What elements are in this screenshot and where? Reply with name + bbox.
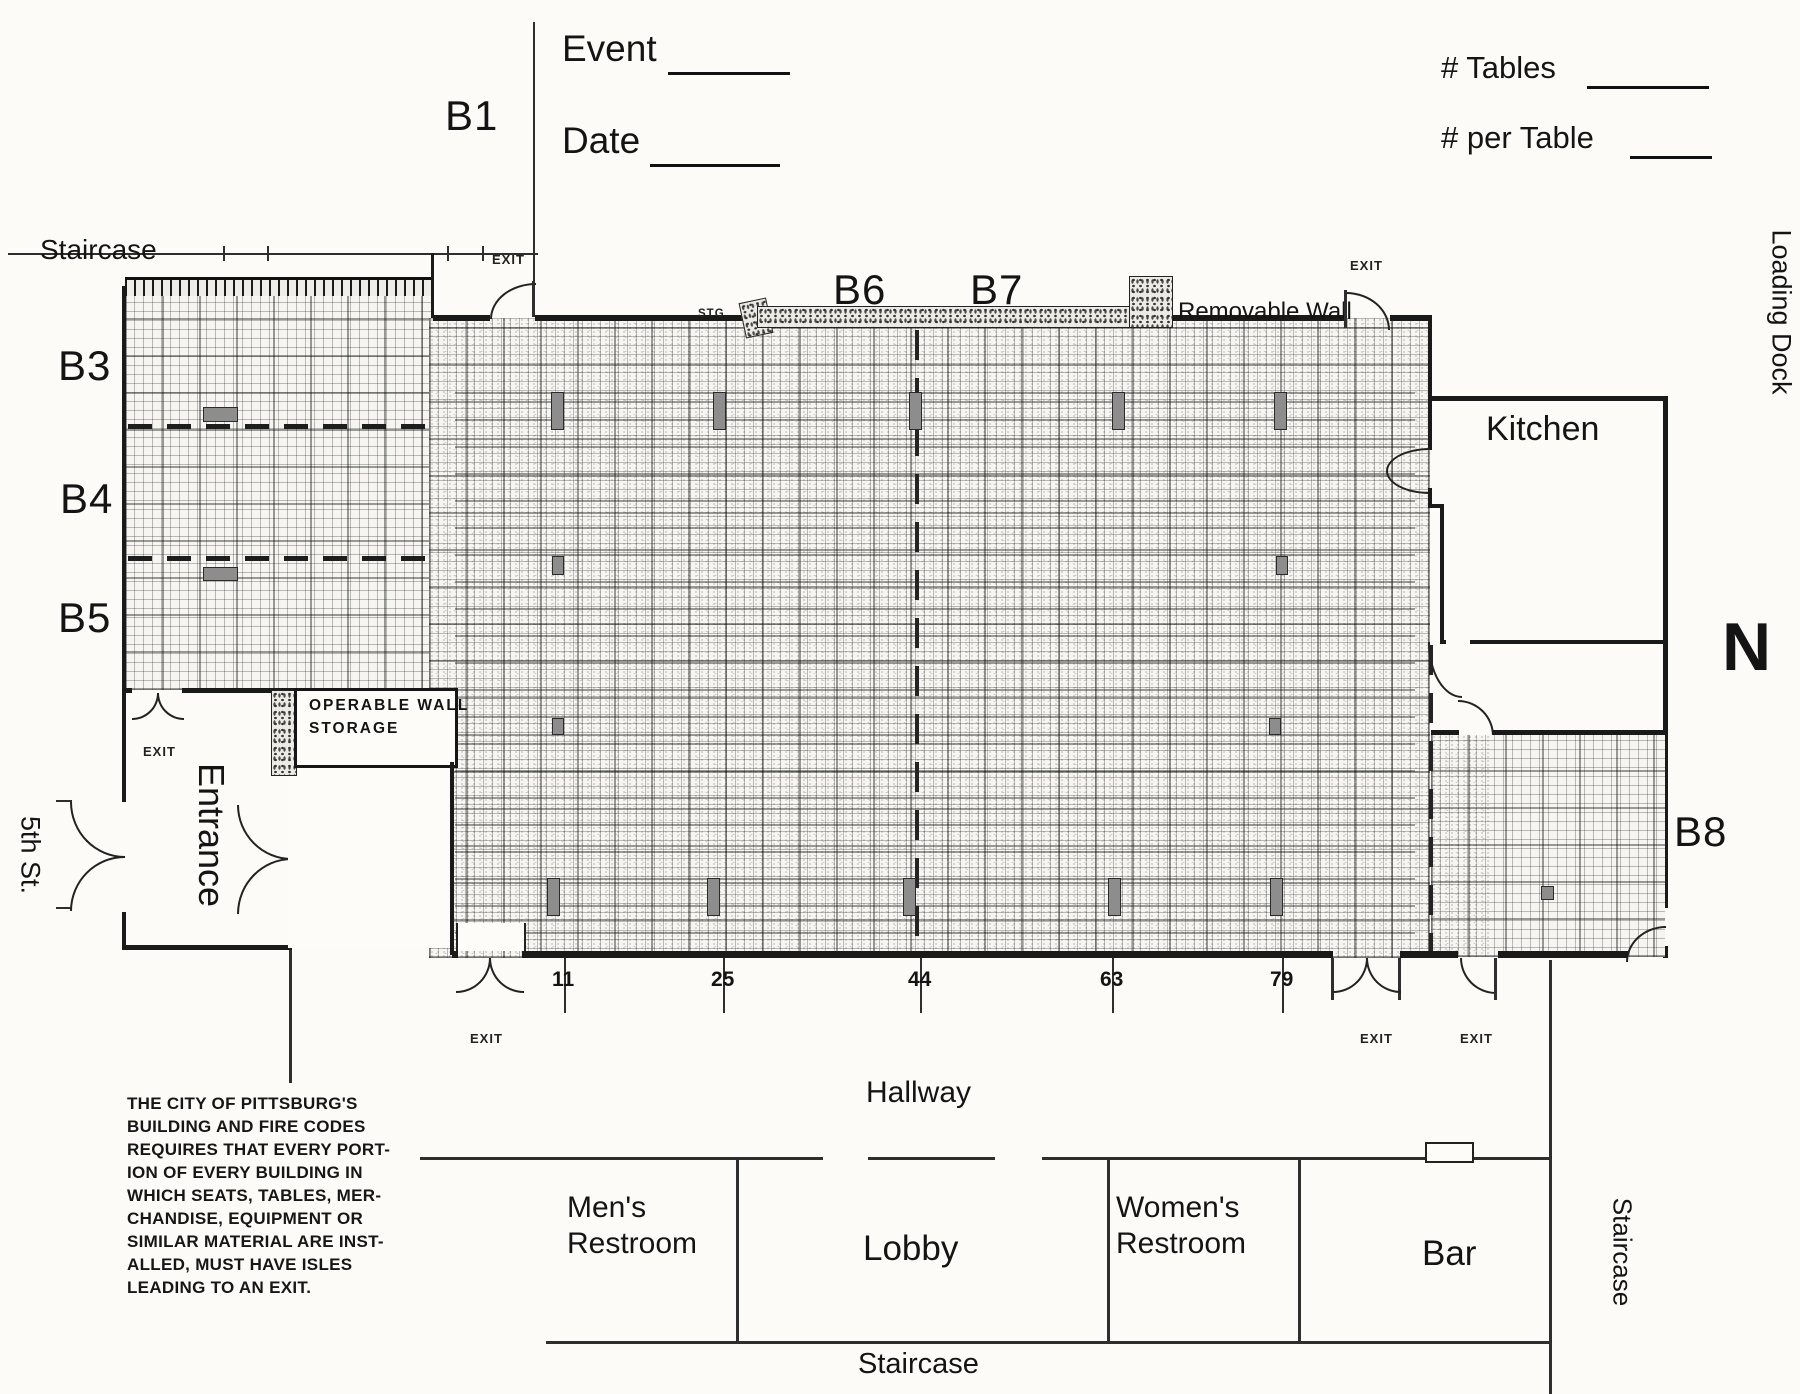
main-hall-table-rows	[455, 392, 1415, 942]
table-count-79: 79	[1270, 968, 1293, 992]
fire-code-note-line: SIMILAR MATERIAL ARE INST-	[127, 1230, 427, 1253]
boundary-line-vertical	[533, 22, 535, 283]
street-label: 5th St.	[15, 816, 46, 894]
fire-code-note-line: ALLED, MUST HAVE ISLES	[127, 1253, 427, 1276]
divider-b4-b5-dashed	[128, 556, 430, 561]
lobby-womens-divider-wall	[1107, 1157, 1110, 1344]
exit-door-arc-bottom-mid	[1366, 958, 1401, 993]
event-field-blank	[668, 72, 790, 75]
floor-plan: B1 Event Date # Tables # per Table Loadi…	[0, 0, 1800, 1394]
exit-label-top-right: EXIT	[1350, 258, 1383, 273]
lobby-bottom-wall	[546, 1341, 1552, 1344]
kitchen-service-door-arc	[1428, 642, 1462, 698]
removable-wall-end-block	[1129, 276, 1173, 328]
num-tables-label: # Tables	[1441, 50, 1556, 86]
hall-top-wall	[1390, 315, 1430, 321]
table-marker	[1276, 556, 1288, 575]
table-marker	[203, 567, 238, 581]
wing-left-wall	[122, 286, 126, 692]
womens-bar-divider-wall	[1298, 1157, 1301, 1344]
boundary-tick	[267, 246, 269, 261]
kitchen-top-wall	[1428, 396, 1668, 401]
entrance-lobby-door-arc	[237, 858, 292, 914]
north-compass-label: N	[1722, 608, 1771, 686]
exit-door-arc-bottom-left	[489, 958, 524, 993]
staircase-right-label: Staircase	[1607, 1198, 1638, 1306]
exit-label-bottom-left: EXIT	[470, 1031, 503, 1046]
fire-code-note-line: REQUIRES THAT EVERY PORT-	[127, 1138, 427, 1161]
exit-door-leaf	[532, 281, 535, 317]
boundary-tick	[223, 246, 225, 261]
removable-wall-band	[757, 306, 1135, 328]
date-field-blank	[650, 164, 780, 167]
womens-restroom-label-line2: Restroom	[1116, 1227, 1246, 1261]
wing-entrance-door-arc	[157, 693, 184, 720]
entrance-bottom-wall	[122, 945, 292, 950]
hall-bottom-wall	[522, 951, 1333, 958]
mens-restroom-label-line1: Men's	[567, 1191, 646, 1225]
event-field-label: Event	[562, 28, 657, 70]
lobby-label: Lobby	[863, 1229, 958, 1269]
hallway-label: Hallway	[866, 1076, 971, 1110]
fire-code-note-line: CHANDISE, EQUIPMENT OR	[127, 1207, 427, 1230]
exit-door-arc-top-left	[490, 283, 536, 319]
table-marker	[1269, 718, 1281, 735]
mens-lobby-divider-wall	[736, 1157, 739, 1344]
hall-bottom-wall	[1498, 951, 1628, 958]
entrance-label: Entrance	[190, 763, 232, 907]
table-count-25: 25	[711, 968, 734, 992]
exit-door-leaf	[1494, 958, 1497, 1000]
entrance-lobby-door-arc	[237, 805, 292, 860]
hallway-wall-line	[1470, 1157, 1552, 1160]
date-field-label: Date	[562, 120, 640, 162]
zone-label-b8: B8	[1674, 808, 1727, 856]
open-area-below-storage	[288, 760, 454, 948]
hall-lower-left-wall	[450, 762, 454, 955]
stg-label: STG.	[698, 308, 729, 320]
exit-label-bottom-right: EXIT	[1460, 1031, 1493, 1046]
storage-label-line2: STORAGE	[309, 720, 399, 738]
fire-code-note-line: LEADING TO AN EXIT.	[127, 1276, 427, 1299]
table-marker	[1541, 886, 1554, 900]
kitchen-left-wall	[1440, 504, 1444, 642]
hallway-wall-line	[868, 1157, 995, 1160]
hall-right-wall	[1428, 315, 1432, 450]
table-marker	[1270, 878, 1283, 916]
exit-recess-jamb	[431, 253, 434, 318]
wing-entrance-door-arc	[132, 693, 159, 720]
exit-label-bottom-mid: EXIT	[1360, 1031, 1393, 1046]
table-marker	[203, 407, 238, 422]
table-count-11: 11	[552, 968, 574, 992]
num-tables-blank	[1587, 86, 1709, 89]
divider-b3-b4-dashed	[128, 424, 430, 429]
num-per-table-label: # per Table	[1441, 120, 1594, 156]
boundary-tick	[447, 246, 449, 261]
fire-code-note-line: BUILDING AND FIRE CODES	[127, 1115, 427, 1138]
staircase-top-label: Staircase	[40, 234, 157, 266]
table-marker	[909, 392, 922, 430]
kitchen-label: Kitchen	[1486, 410, 1599, 449]
fire-code-note-line: WHICH SEATS, TABLES, MER-	[127, 1184, 427, 1207]
womens-restroom-label-line1: Women's	[1116, 1191, 1240, 1225]
zone-label-b4: B4	[60, 475, 113, 523]
exit-door-arc-bottom-mid	[1333, 958, 1368, 993]
removable-wall-label: Removable Wall	[1178, 298, 1352, 326]
table-marker	[552, 718, 564, 735]
bar-label: Bar	[1422, 1234, 1476, 1274]
exit-door-recess	[456, 923, 526, 951]
b8-hall-divider-dashed	[1429, 645, 1433, 957]
hall-top-wall	[433, 315, 490, 321]
zone-label-b5: B5	[58, 594, 111, 642]
hallway-wall-line	[420, 1157, 823, 1160]
b8-room-floor-texture	[1431, 735, 1491, 957]
zone-label-b1: B1	[445, 92, 498, 140]
table-marker	[1108, 878, 1121, 916]
table-marker	[713, 392, 726, 430]
b8-top-wall	[1492, 730, 1665, 735]
fire-code-note: THE CITY OF PITTSBURG'S BUILDING AND FIR…	[127, 1092, 427, 1299]
hallway-wall-line	[1042, 1157, 1425, 1160]
loading-dock-label: Loading Dock	[1766, 229, 1797, 394]
hall-bottom-wall	[1400, 951, 1458, 958]
staircase-bottom-label: Staircase	[858, 1348, 979, 1381]
lobby-partition-wall	[289, 950, 292, 1083]
exit-door-arc-top-right	[1346, 292, 1390, 330]
exit-label-entrance: EXIT	[143, 744, 176, 759]
fire-code-note-line: ION OF EVERY BUILDING IN	[127, 1161, 427, 1184]
num-per-table-blank	[1630, 156, 1712, 159]
street-door-arc	[70, 802, 125, 858]
bar-counter-notch	[1425, 1142, 1474, 1163]
zone-label-b3: B3	[58, 342, 111, 390]
table-marker	[551, 392, 564, 430]
exit-door-arc-bottom-left	[456, 958, 491, 993]
b8-vestibule-door-arc	[1458, 700, 1494, 736]
zone-label-b7: B7	[970, 266, 1023, 314]
table-marker	[547, 878, 560, 916]
table-marker	[1274, 392, 1287, 430]
bar-staircase-divider-wall	[1549, 960, 1552, 1394]
boundary-tick	[482, 246, 484, 261]
zone-label-b6: B6	[833, 266, 886, 314]
table-marker	[552, 556, 564, 575]
mens-restroom-label-line2: Restroom	[567, 1227, 697, 1261]
wing-room-floor	[125, 296, 433, 690]
exit-label-top-left: EXIT	[492, 252, 525, 267]
exit-door-arc-bottom-right	[1460, 958, 1496, 994]
table-count-63: 63	[1100, 968, 1123, 992]
table-marker	[903, 878, 916, 916]
table-marker	[1112, 392, 1125, 430]
storage-label-line1: OPERABLE WALL	[309, 697, 469, 715]
kitchen-bottom-wall	[1470, 640, 1666, 644]
exit-door-leaf	[1344, 290, 1347, 328]
table-marker	[707, 878, 720, 916]
table-count-44: 44	[908, 968, 931, 992]
street-door-arc	[70, 856, 125, 911]
fire-code-note-line: THE CITY OF PITTSBURG'S	[127, 1092, 427, 1115]
entrance-left-wall	[122, 690, 126, 802]
b8-top-wall	[1431, 730, 1459, 735]
